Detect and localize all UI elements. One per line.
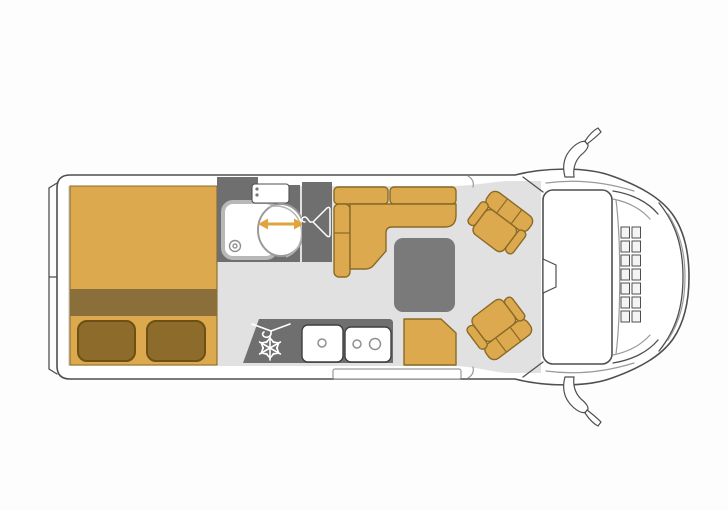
side-seat	[404, 319, 456, 365]
pillow	[78, 321, 135, 361]
stove-hob	[345, 327, 391, 362]
sliding-door-step	[333, 369, 461, 379]
wardrobe-body	[302, 182, 332, 262]
bathroom	[217, 177, 304, 262]
bed-blanket-band	[70, 289, 217, 316]
floorplan-canvas	[0, 0, 728, 510]
faucet-dot-icon	[255, 193, 258, 196]
faucet-dot-icon	[255, 187, 258, 190]
kitchen-sink	[302, 325, 343, 362]
pillow	[147, 321, 205, 361]
kitchen	[243, 319, 393, 363]
wardrobe	[302, 182, 332, 262]
bench-back-cushion	[390, 187, 456, 204]
rearview-mirror	[543, 259, 556, 293]
bench-side-cushion	[334, 204, 350, 277]
dinette-table	[394, 238, 455, 312]
rear-bed	[70, 186, 217, 365]
bench-back-cushion	[334, 187, 388, 204]
